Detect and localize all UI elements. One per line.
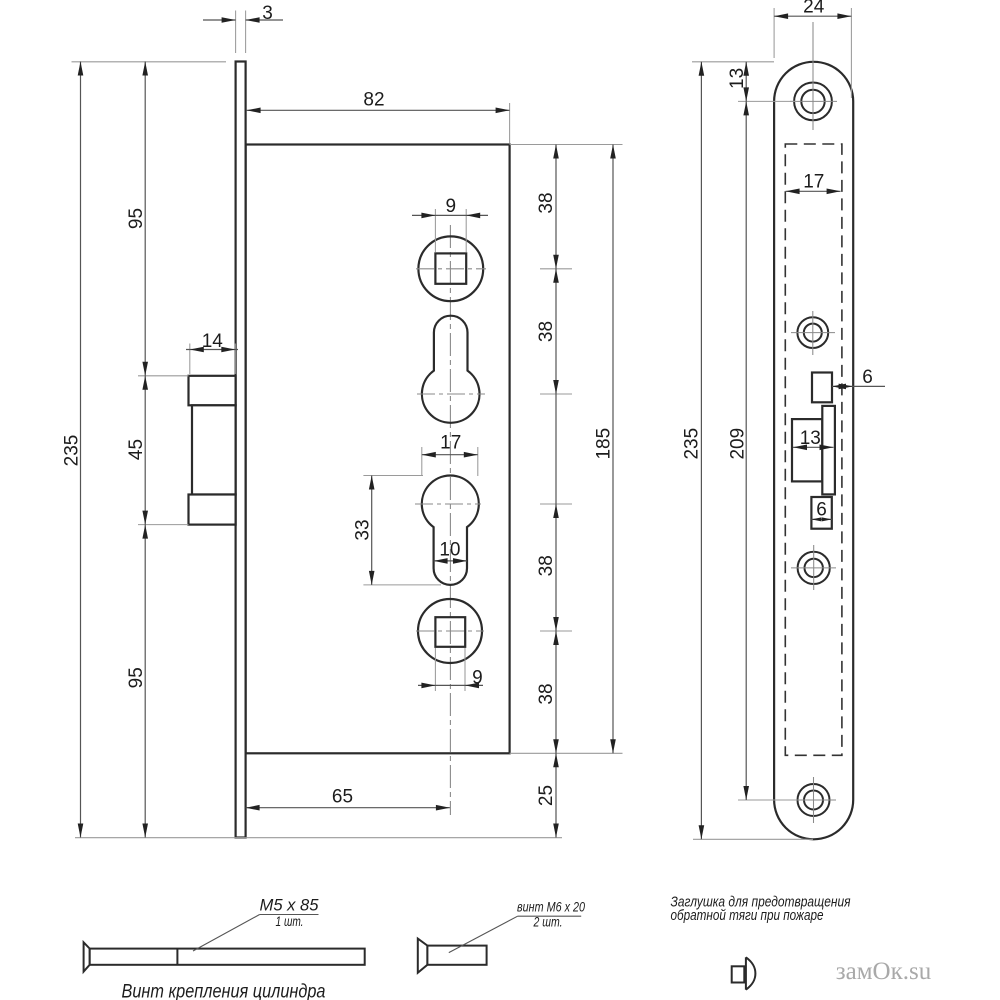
svg-text:10: 10 bbox=[439, 540, 460, 561]
svg-text:38: 38 bbox=[536, 321, 557, 342]
svg-text:обратной тяги при пожаре: обратной тяги при пожаре bbox=[671, 908, 824, 924]
svg-text:17: 17 bbox=[440, 433, 461, 454]
svg-text:235: 235 bbox=[682, 428, 703, 460]
svg-text:6: 6 bbox=[862, 367, 873, 388]
svg-text:82: 82 bbox=[363, 90, 384, 111]
svg-text:38: 38 bbox=[536, 192, 557, 213]
svg-text:38: 38 bbox=[536, 683, 557, 704]
svg-text:17: 17 bbox=[803, 172, 824, 193]
svg-text:14: 14 bbox=[202, 331, 224, 352]
svg-text:замОк.su: замОк.su bbox=[836, 958, 932, 985]
svg-text:13: 13 bbox=[800, 428, 821, 449]
svg-text:38: 38 bbox=[536, 555, 557, 576]
svg-text:33: 33 bbox=[353, 519, 374, 540]
svg-text:185: 185 bbox=[594, 428, 615, 460]
svg-text:6: 6 bbox=[816, 500, 827, 521]
svg-text:1 шт.: 1 шт. bbox=[276, 914, 304, 929]
svg-text:13: 13 bbox=[727, 68, 748, 89]
svg-text:Винт крепления цилиндра: Винт крепления цилиндра bbox=[122, 982, 326, 1000]
svg-text:М5 х 85: М5 х 85 bbox=[260, 896, 320, 915]
svg-text:45: 45 bbox=[126, 439, 147, 460]
svg-text:9: 9 bbox=[472, 667, 483, 688]
svg-text:65: 65 bbox=[332, 787, 353, 808]
svg-text:25: 25 bbox=[536, 785, 557, 806]
svg-text:95: 95 bbox=[126, 667, 147, 688]
svg-text:9: 9 bbox=[446, 196, 457, 217]
svg-text:209: 209 bbox=[727, 428, 748, 460]
svg-text:24: 24 bbox=[803, 0, 825, 17]
svg-text:95: 95 bbox=[126, 208, 147, 229]
svg-text:3: 3 bbox=[262, 3, 273, 24]
svg-text:2 шт.: 2 шт. bbox=[533, 915, 563, 930]
svg-text:винт М6 х 20: винт М6 х 20 bbox=[517, 900, 585, 915]
svg-text:235: 235 bbox=[62, 435, 83, 467]
